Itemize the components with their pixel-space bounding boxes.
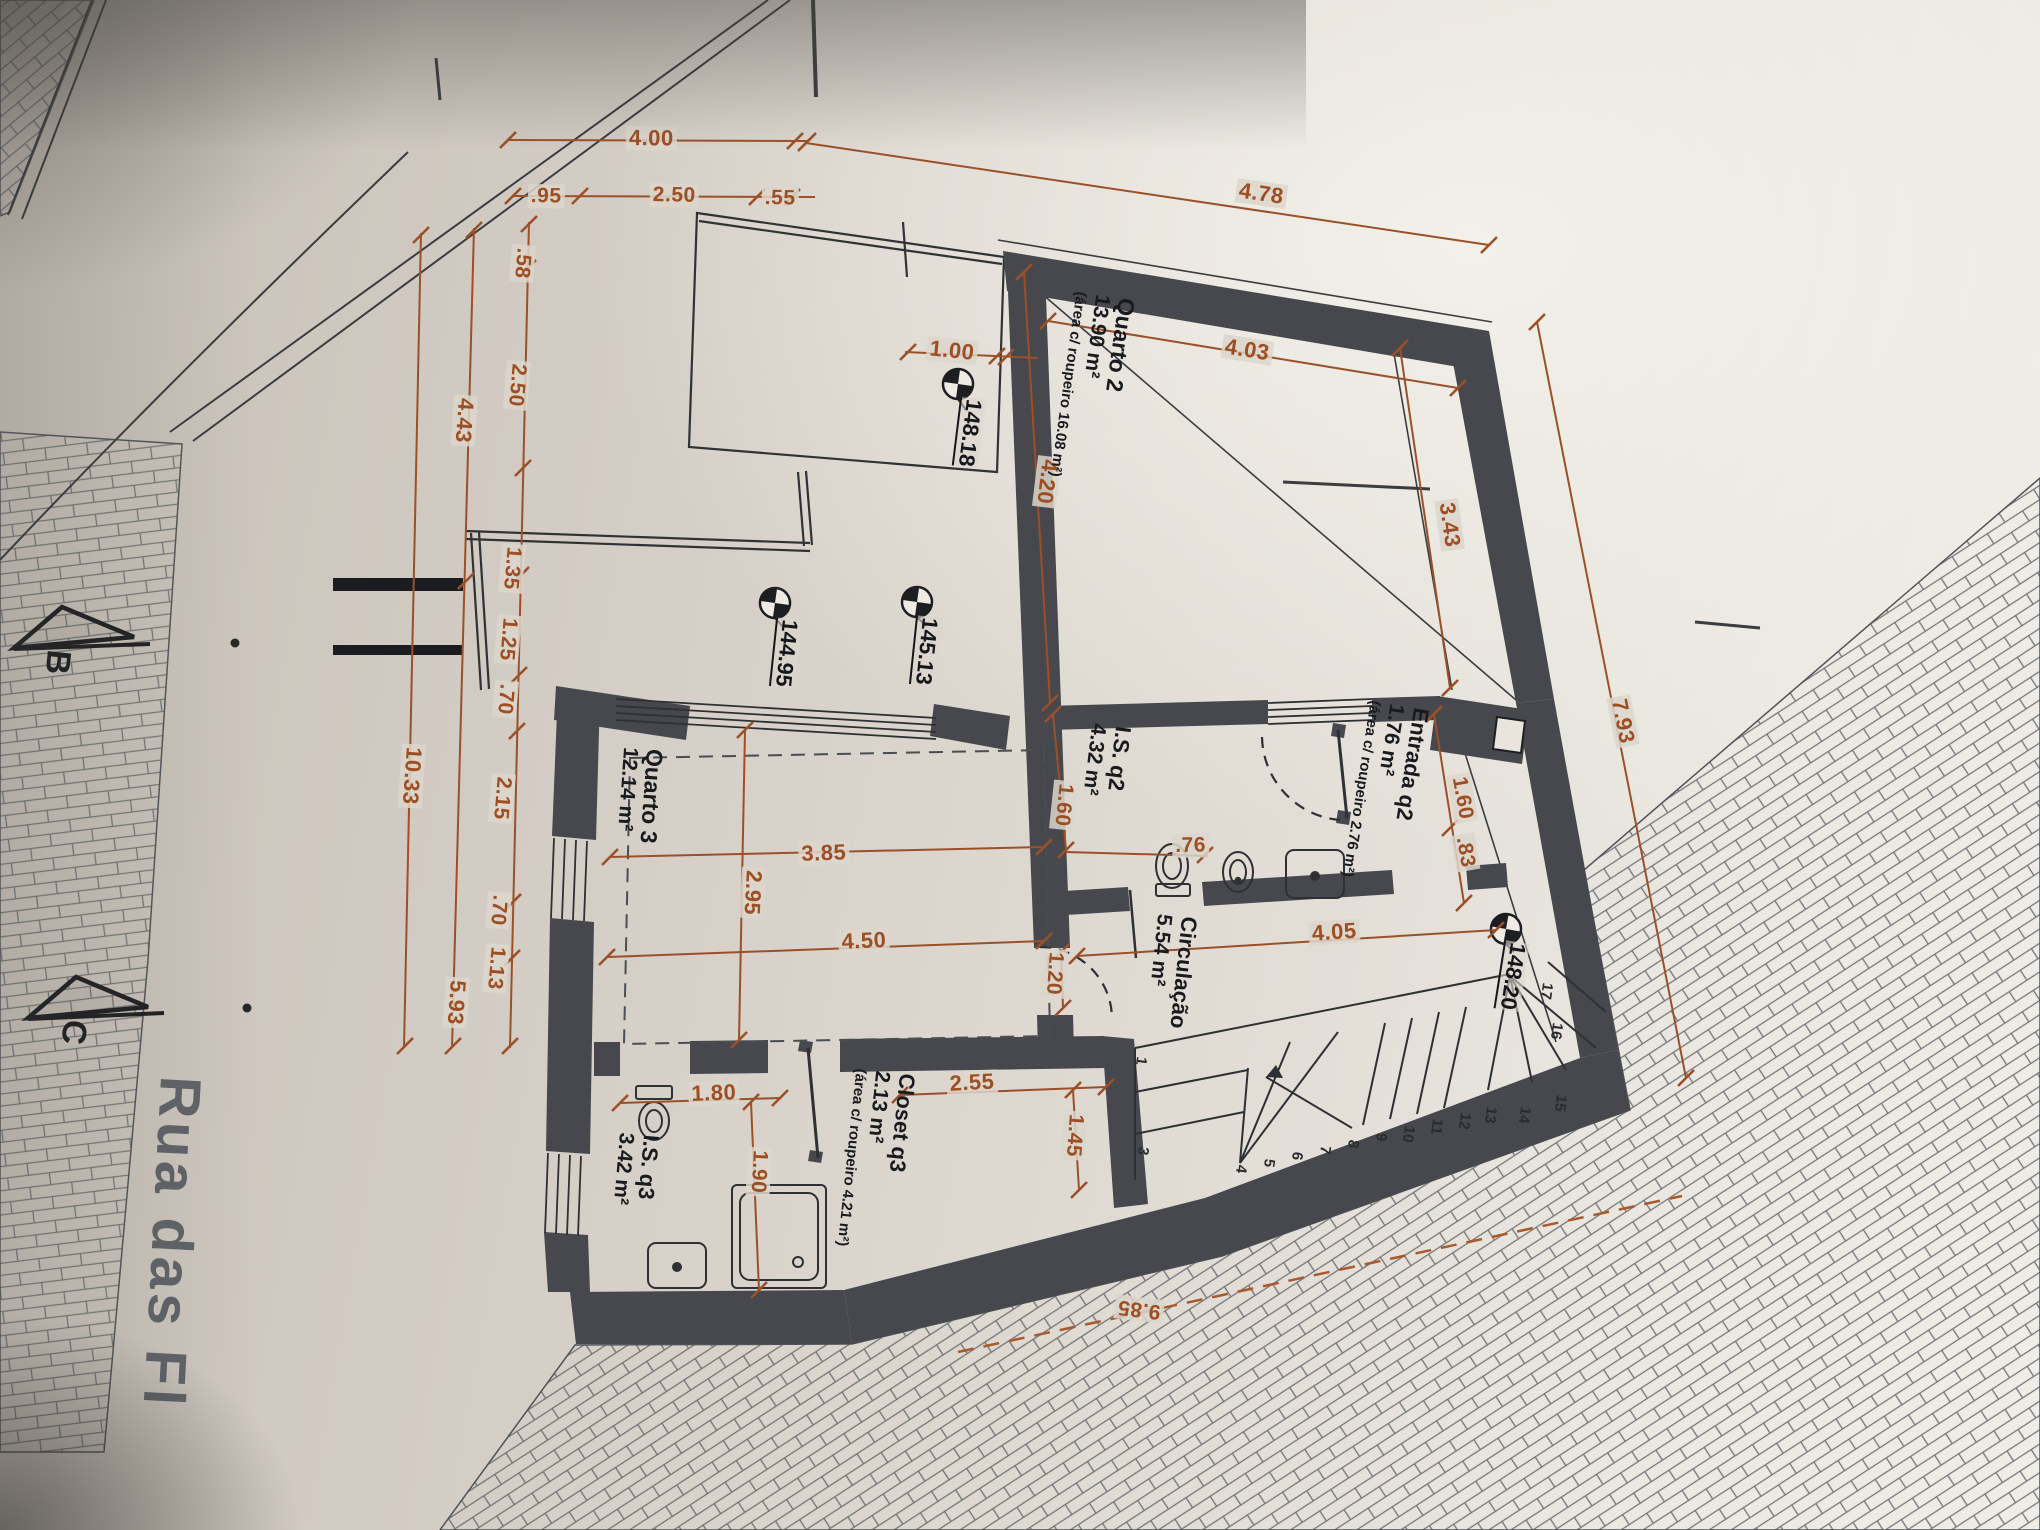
dim-outer-10-33: 10.33 [398,743,426,808]
stair-number: 11 [1427,1118,1446,1136]
stair-number: 15 [1551,1094,1570,1113]
dim-mid-5-93: 5.93 [443,976,470,1028]
dim-left-1-35: 1.35 [498,543,526,594]
dim-1-00: 1.00 [925,336,978,365]
dim-mid-4-43: 4.43 [451,394,478,446]
dim-1-45: 1.45 [1061,1110,1088,1160]
windows [545,699,1372,1236]
stair-number: 17 [1537,982,1556,1001]
quarto3-ceiling-dashed [624,750,1050,1044]
dim-1-20: 1.20 [1041,948,1068,998]
dim-left-1-13: 1.13 [482,943,510,994]
dim-4-05: 4.05 [1308,918,1360,945]
dim-3-85: 3.85 [798,840,850,866]
dim-left-70b: .70 [485,891,512,930]
label-is-q2: I.S. q2 4.32 m² [1078,722,1136,800]
dim-1-80: 1.80 [688,1080,740,1106]
dim-left-2-50: 2.50 [503,360,531,411]
stair-number: 13 [1481,1106,1500,1125]
dim-1-90: 1.90 [745,1147,772,1197]
dim-left-2-15: 2.15 [488,773,516,824]
dim-top-95: .95 [528,184,565,209]
plan-linework [0,0,2040,1530]
floor-plan-photo: 4.00 .95 2.50 .55 4.78 .58 2.50 1.35 1.2… [0,0,2040,1530]
section-cut-marks [231,578,464,1013]
stair-number: 16 [1547,1022,1566,1041]
dim-4-50: 4.50 [838,928,890,954]
section-letter-b: B [37,648,78,677]
label-quarto3: Quarto 3 12.14 m² [612,747,668,845]
dim-2-95: 2.95 [739,867,766,919]
dim-left-58: .58 [509,244,536,283]
dim-76: .76 [1172,833,1209,858]
section-letter-c: C [53,1018,94,1047]
stair-number: 10 [1399,1125,1418,1144]
dim-is-1-60: 1.60 [1049,779,1078,830]
dim-top-2-50: 2.50 [650,183,699,208]
stair-number: 14 [1515,1106,1534,1125]
stair-number: 12 [1455,1112,1474,1131]
dim-left-1-25: 1.25 [494,614,522,665]
dim-2-55: 2.55 [946,1069,998,1096]
dim-top-4-00: 4.00 [626,126,677,150]
wall-niche [1493,717,1525,753]
neighbor-hatch-area [440,478,2040,1530]
dim-top-55: .55 [762,186,799,211]
dim-left-70a: .70 [492,680,519,719]
label-is-q3: I.S. q3 3.42 m² [608,1132,664,1208]
